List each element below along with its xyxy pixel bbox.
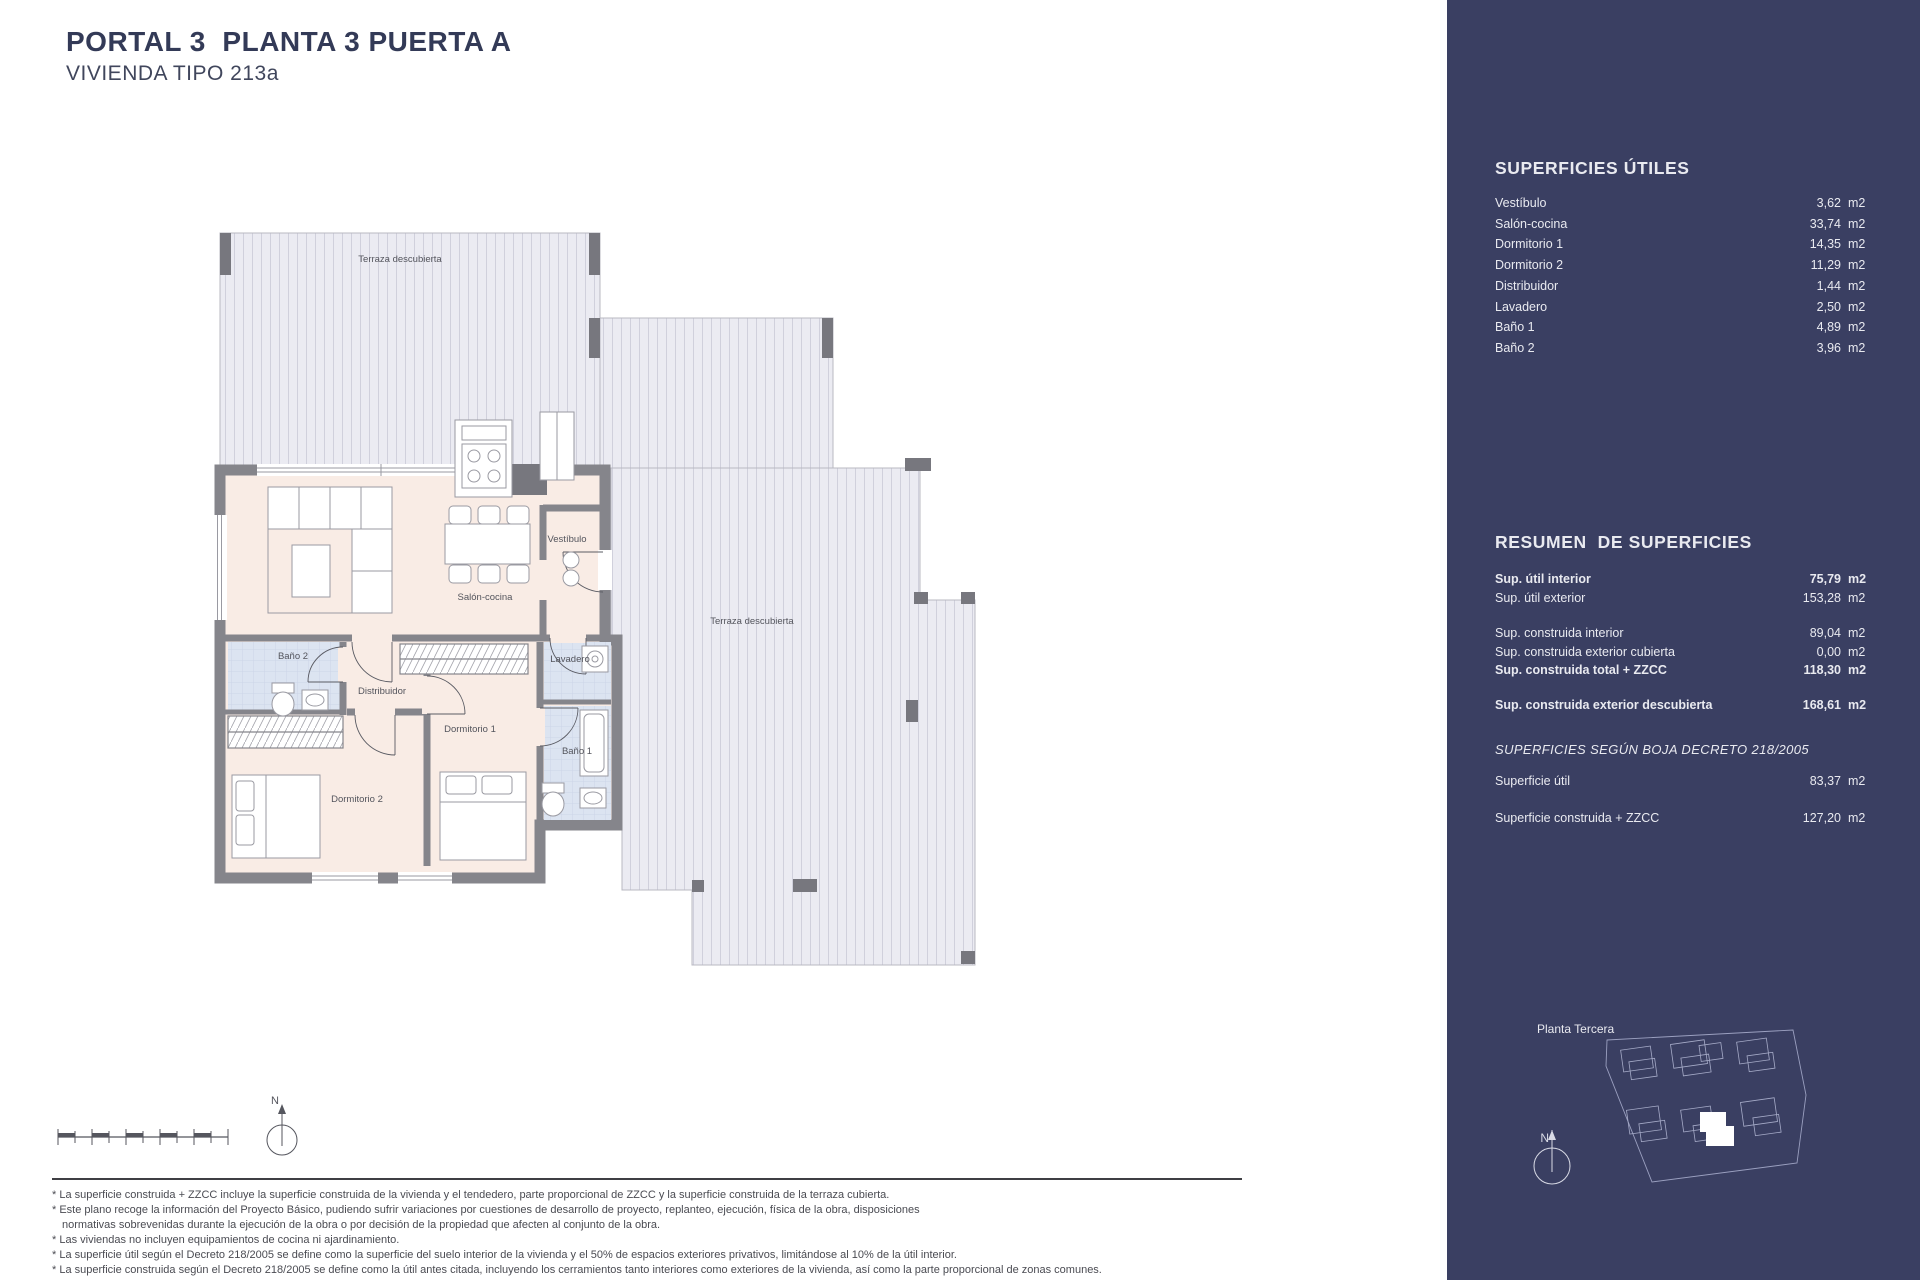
label-dormitorio2: Dormitorio 2 <box>331 794 383 805</box>
north-compass-icon: N <box>267 1095 297 1155</box>
floor-plan: Terraza descubierta Terraza descubierta … <box>0 0 1447 1280</box>
footnotes: * La superficie construida + ZZCC incluy… <box>52 1178 1242 1278</box>
label-terraza-top: Terraza descubierta <box>358 254 442 265</box>
compass-north-letter: N <box>271 1095 279 1107</box>
footnote-line: * La superficie construida según el Decr… <box>52 1263 1242 1278</box>
label-distribuidor: Distribuidor <box>358 686 406 697</box>
label-vestibulo: Vestíbulo <box>547 534 586 545</box>
highlighted-unit <box>1700 1112 1734 1146</box>
plan-sheet: PORTAL 3 PLANTA 3 PUERTA A VIVIENDA TIPO… <box>0 0 1920 1280</box>
label-dormitorio1: Dormitorio 1 <box>444 724 496 735</box>
terrace-upper-right <box>600 318 833 468</box>
bed-dormitorio-2 <box>232 775 320 858</box>
footnote-line: * La superficie construida + ZZCC incluy… <box>52 1188 1242 1203</box>
minimap-north-compass-icon: N <box>1534 1130 1570 1184</box>
footnote-line: * La superficie útil según el Decreto 21… <box>52 1248 1242 1263</box>
bed-dormitorio-1 <box>440 772 526 860</box>
site-minimap: N <box>1447 0 1920 1280</box>
footnote-line: * Este plano recoge la información del P… <box>52 1203 1242 1218</box>
sidebar: SUPERFICIES ÚTILES Vestíbulo3,62m2 Salón… <box>1447 0 1920 1280</box>
label-salon: Salón-cocina <box>458 592 514 603</box>
footnote-line: * Las viviendas no incluyen equipamiento… <box>52 1233 1242 1248</box>
scale-bar <box>58 1129 228 1145</box>
label-terraza-right: Terraza descubierta <box>710 616 794 627</box>
footnote-line: normativas sobrevenidas durante la ejecu… <box>52 1218 1242 1233</box>
label-bano1: Baño 1 <box>562 746 592 757</box>
minimap-north-letter: N <box>1540 1131 1549 1145</box>
label-lavadero: Lavadero <box>550 654 590 665</box>
label-bano2: Baño 2 <box>278 651 308 662</box>
dining-table <box>445 506 530 583</box>
